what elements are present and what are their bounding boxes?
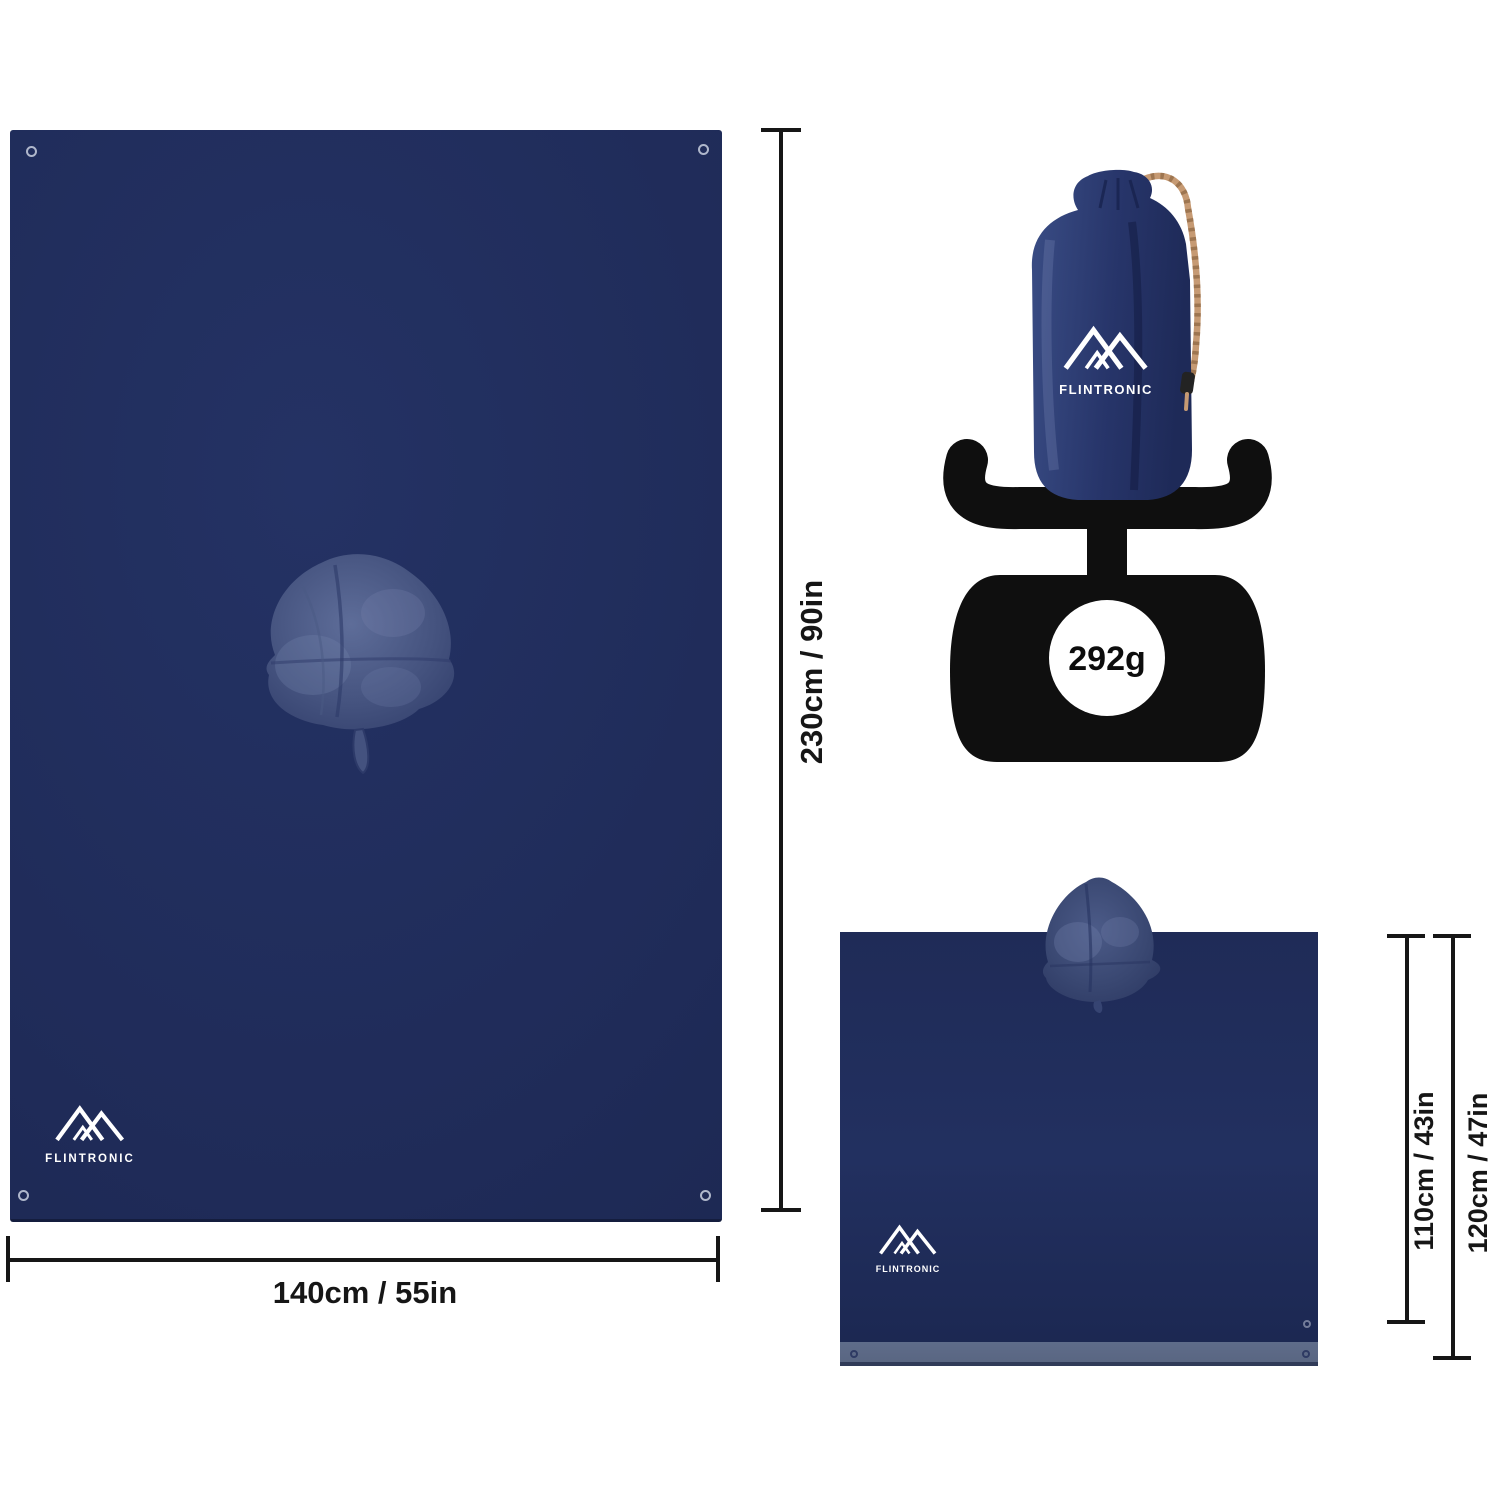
brand-logo: FLINTRONIC [1058, 322, 1154, 397]
grommet-icon [698, 144, 709, 155]
grommet-icon [18, 1190, 29, 1201]
tarp-flat-view: FLINTRONIC [10, 130, 722, 1222]
dimension-line [1451, 936, 1455, 1360]
hood-icon [243, 535, 478, 780]
brand-logo: FLINTRONIC [40, 1102, 140, 1165]
hood-icon [1020, 870, 1175, 1015]
mountain-peaks-icon [1062, 322, 1150, 372]
brand-name: FLINTRONIC [872, 1264, 944, 1274]
poncho-worn-view: FLINTRONIC [840, 862, 1320, 1370]
grommet-icon [26, 146, 37, 157]
grommet-icon [1303, 1320, 1311, 1328]
poncho-bottom-trim [840, 1342, 1318, 1366]
grommet-icon [850, 1350, 858, 1358]
dimension-cap [1433, 1356, 1471, 1360]
weight-value: 292g [1047, 637, 1167, 681]
dimension-line [8, 1258, 720, 1262]
mountain-peaks-icon [54, 1102, 126, 1143]
hood-drawcord-tail [353, 729, 368, 773]
dimension-cap [716, 1236, 720, 1282]
poncho-outer-height-label: 120cm / 47in [1462, 1007, 1494, 1339]
tarp-width-label: 140cm / 55in [165, 1274, 565, 1312]
poncho-inner-height-label: 110cm / 43in [1408, 1005, 1440, 1337]
product-infographic: FLINTRONIC 230cm / 90in 140cm / 55in 292… [0, 0, 1500, 1500]
brand-name: FLINTRONIC [1058, 382, 1154, 397]
brand-logo: FLINTRONIC [872, 1222, 944, 1274]
brand-name: FLINTRONIC [40, 1153, 140, 1165]
grommet-icon [700, 1190, 711, 1201]
mountain-peaks-icon [878, 1222, 938, 1256]
dimension-cap [761, 1208, 801, 1212]
dimension-line [779, 130, 783, 1210]
tarp-height-label: 230cm / 90in [792, 492, 832, 852]
grommet-icon [1302, 1350, 1310, 1358]
